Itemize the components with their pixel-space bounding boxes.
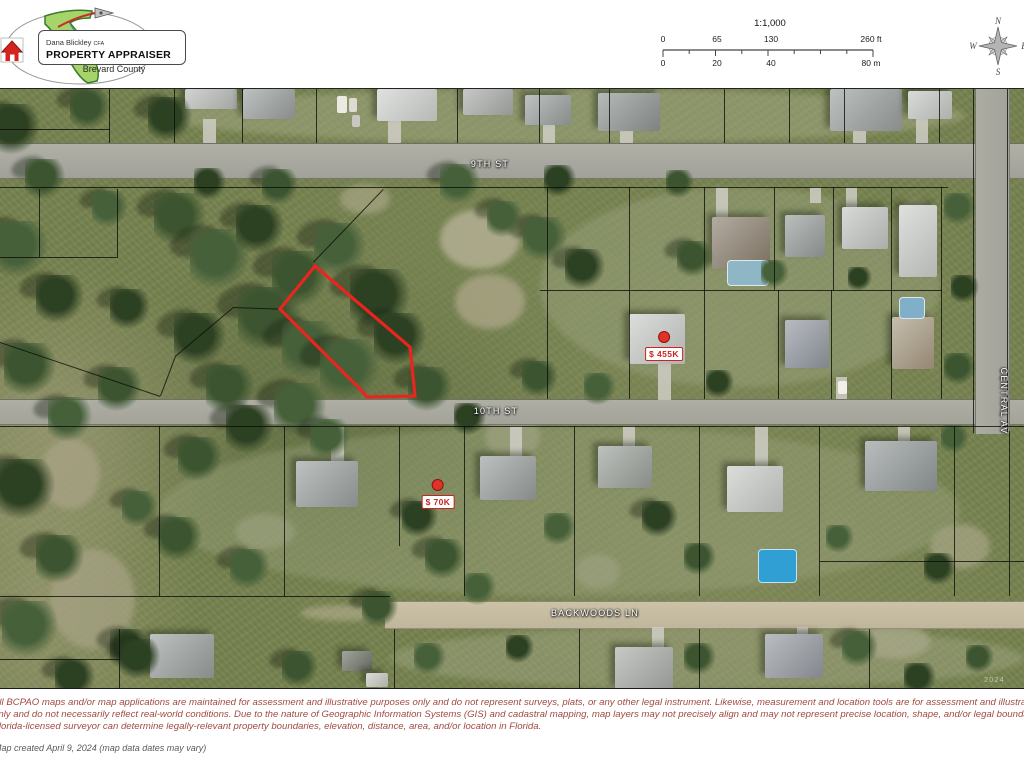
highlighted-parcel-layer (0, 89, 1024, 689)
scale-bar: 1:1,000 0 65 130 260 ft 0 20 40 80 m (655, 12, 895, 76)
scale-m-20: 20 (712, 58, 721, 68)
street-label-central-av: CENTRAL AV (999, 367, 1009, 434)
disclaimer-line-3: Florida-licensed surveyor can determine … (0, 721, 541, 732)
compass-s: S (996, 67, 1001, 77)
price-label-455k: $ 455K (645, 347, 683, 361)
county-label: Brevard County (58, 64, 170, 74)
street-label-9th-st: 9TH ST (471, 159, 509, 169)
bcpao-logo: Dana BlickleyCFA PROPERTY APPRAISER Brev… (0, 2, 180, 88)
map-created-note: Map created April 9, 2024 (map data date… (0, 743, 206, 753)
scale-ft-260: 260 ft (860, 34, 881, 44)
price-label-70k: $ 70K (422, 495, 455, 509)
appraiser-name: Dana Blickley (46, 38, 91, 47)
map-header: Dana BlickleyCFA PROPERTY APPRAISER Brev… (0, 0, 1024, 88)
rocket-window-icon (99, 11, 102, 14)
aerial-parcel-map[interactable]: 9TH ST 10TH ST BACKWOODS LN CENTRAL AV $… (0, 88, 1024, 689)
bcpao-map-page: Dana BlickleyCFA PROPERTY APPRAISER Brev… (0, 0, 1024, 768)
scale-m-40: 40 (766, 58, 775, 68)
scale-ft-65: 65 (712, 34, 721, 44)
appraiser-credential: CFA (93, 41, 104, 47)
street-label-backwoods-ln: BACKWOODS LN (551, 608, 639, 618)
rocket-icon (95, 8, 113, 18)
map-footer: All BCPAO maps and/or map applications a… (0, 688, 1024, 768)
scale-ft-0: 0 (661, 34, 666, 44)
scale-ratio: 1:1,000 (754, 18, 786, 29)
compass-e: E (1020, 41, 1024, 51)
compass-w: W (969, 41, 978, 51)
disclaimer-line-1: All BCPAO maps and/or map applications a… (0, 697, 1024, 708)
appraiser-name-box: Dana BlickleyCFA PROPERTY APPRAISER (38, 30, 186, 65)
price-marker-70k[interactable]: $ 70K (422, 479, 455, 510)
scale-ft-130: 130 (764, 34, 778, 44)
marker-dot-icon (432, 479, 444, 491)
price-marker-455k[interactable]: $ 455K (645, 331, 683, 362)
home-icon-door (10, 55, 15, 62)
highlighted-parcel-outline[interactable] (280, 266, 415, 397)
marker-dot-icon (658, 331, 670, 343)
disclaimer-line-2: only and do not necessarily reflect real… (0, 709, 1024, 720)
compass-n: N (994, 16, 1002, 26)
imagery-watermark: 2024 (984, 675, 1005, 684)
scale-m-0: 0 (661, 58, 666, 68)
street-label-10th-st: 10TH ST (474, 406, 518, 416)
scale-bar-ticks (655, 46, 895, 58)
office-title: PROPERTY APPRAISER (46, 50, 180, 61)
compass-rose-icon: N W E S (966, 14, 1024, 78)
scale-m-80: 80 m (862, 58, 881, 68)
